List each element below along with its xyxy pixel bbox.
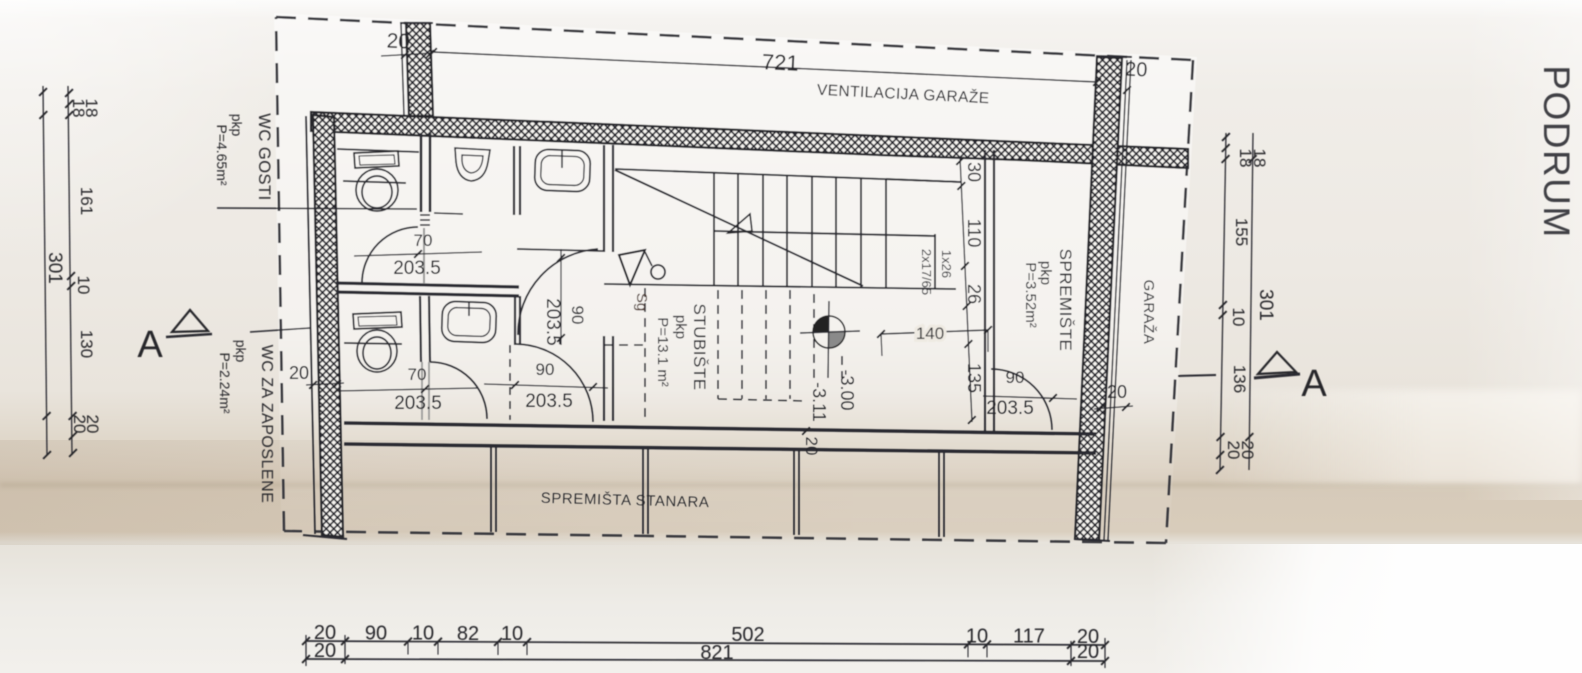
svg-text:90: 90 xyxy=(536,360,555,379)
svg-text:301: 301 xyxy=(1255,289,1276,321)
svg-text:136: 136 xyxy=(1230,365,1249,393)
svg-text:20: 20 xyxy=(1238,441,1257,460)
svg-text:pkp: pkp xyxy=(672,315,689,339)
svg-text:301: 301 xyxy=(44,252,65,284)
svg-text:90: 90 xyxy=(568,306,587,325)
svg-text:161: 161 xyxy=(77,187,96,215)
svg-text:82: 82 xyxy=(457,623,479,645)
svg-text:90: 90 xyxy=(365,622,387,644)
svg-text:203.5: 203.5 xyxy=(394,393,442,414)
svg-text:A: A xyxy=(1301,363,1327,405)
svg-text:135: 135 xyxy=(964,363,984,393)
svg-text:2x17/65: 2x17/65 xyxy=(919,249,934,295)
svg-text:203.5: 203.5 xyxy=(525,391,573,412)
svg-text:130: 130 xyxy=(77,330,96,358)
svg-text:pkp: pkp xyxy=(233,340,249,363)
svg-text:117: 117 xyxy=(1013,626,1045,648)
svg-text:P=13.1 m²: P=13.1 m² xyxy=(654,317,671,387)
svg-text:20: 20 xyxy=(1077,641,1099,663)
svg-text:20: 20 xyxy=(386,30,410,54)
svg-text:A: A xyxy=(137,324,163,366)
svg-text:70: 70 xyxy=(408,365,427,384)
svg-text:20: 20 xyxy=(1125,59,1148,82)
svg-text:70: 70 xyxy=(414,231,433,250)
svg-text:P=2.24m²: P=2.24m² xyxy=(217,352,233,413)
svg-text:WC ZA ZAPOSLENE: WC ZA ZAPOSLENE xyxy=(258,345,275,504)
svg-text:Sg: Sg xyxy=(633,293,650,311)
svg-text:203.5: 203.5 xyxy=(986,398,1034,419)
svg-text:18: 18 xyxy=(1250,149,1269,168)
svg-text:10: 10 xyxy=(74,276,93,295)
svg-text:20: 20 xyxy=(1107,382,1127,402)
svg-text:20: 20 xyxy=(289,363,309,383)
svg-text:WC GOSTI: WC GOSTI xyxy=(255,113,273,200)
svg-text:-3.11: -3.11 xyxy=(809,382,829,422)
svg-text:10: 10 xyxy=(412,623,434,645)
svg-text:-3.00: -3.00 xyxy=(837,369,857,410)
svg-text:30: 30 xyxy=(964,162,984,182)
svg-text:203.5: 203.5 xyxy=(542,298,563,346)
svg-text:GARAŽA: GARAŽA xyxy=(1140,280,1157,345)
svg-text:P=4.65m²: P=4.65m² xyxy=(214,124,230,185)
svg-text:203.5: 203.5 xyxy=(393,258,441,279)
svg-text:10: 10 xyxy=(1229,308,1248,327)
svg-text:721: 721 xyxy=(761,49,799,76)
svg-text:90: 90 xyxy=(1006,368,1025,387)
svg-text:20: 20 xyxy=(83,415,102,434)
svg-text:SPREMIŠTE: SPREMIŠTE xyxy=(1056,249,1075,352)
svg-text:P=3.52m²: P=3.52m² xyxy=(1022,262,1039,327)
svg-text:502: 502 xyxy=(731,624,764,646)
svg-text:PODRUM: PODRUM xyxy=(1536,65,1577,238)
svg-text:pkp: pkp xyxy=(229,114,245,137)
svg-text:STUBIŠTE: STUBIŠTE xyxy=(690,303,709,390)
svg-text:1x26: 1x26 xyxy=(939,250,954,278)
svg-text:155: 155 xyxy=(1232,218,1251,246)
svg-text:10: 10 xyxy=(966,625,988,647)
svg-text:26: 26 xyxy=(964,284,984,304)
svg-text:10: 10 xyxy=(501,623,523,645)
svg-text:20: 20 xyxy=(314,640,336,662)
svg-text:140: 140 xyxy=(916,324,944,343)
svg-text:821: 821 xyxy=(700,642,733,664)
svg-text:20: 20 xyxy=(802,437,821,456)
svg-text:18: 18 xyxy=(82,99,101,118)
svg-text:110: 110 xyxy=(964,219,984,248)
